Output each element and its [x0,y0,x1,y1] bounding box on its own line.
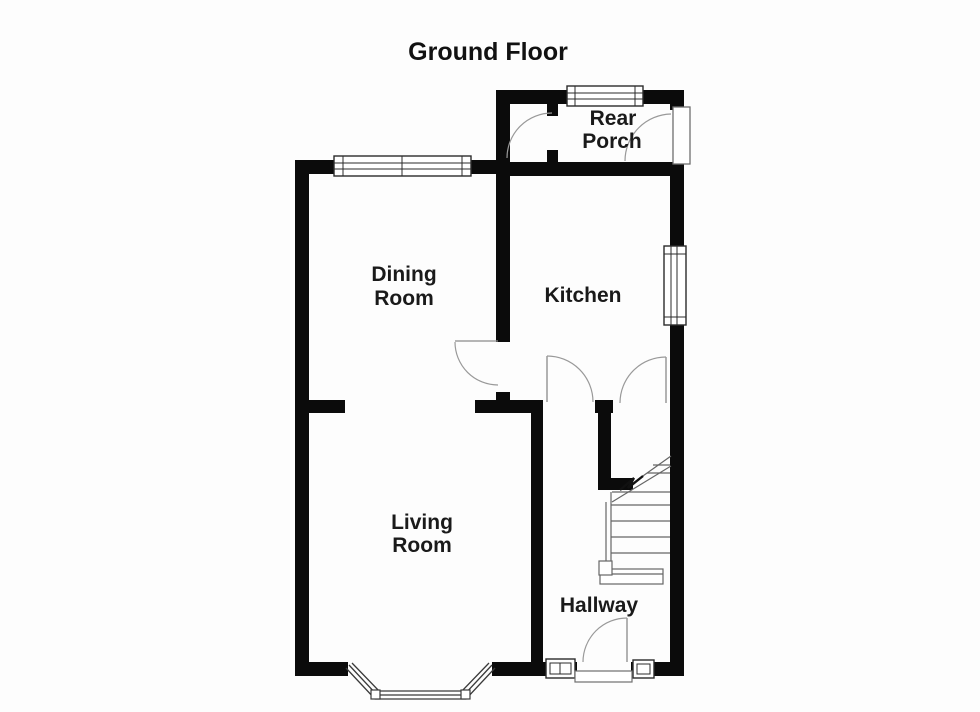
wall-porch-top-left [496,90,571,104]
wall-dining-kitchen-divider [496,176,510,342]
dining-room-label-line2: Room [374,287,434,310]
dining-room-window [334,156,471,176]
living-room-label-line2: Room [392,534,452,557]
porch-door-jamb-top [547,104,558,116]
room-label-hallway: Hallway [560,594,639,617]
bay-window [346,663,495,699]
front-sidelight-right-window [633,660,654,678]
stair-newel-post [599,561,612,575]
rear-porch-window [567,86,643,106]
outer-walls [295,90,684,676]
front-sidelight-left-window [546,659,575,678]
rear-porch-label-line1: Rear [590,107,637,130]
wall-top-dining-left [295,160,337,174]
living-room-label-line1: Living [391,511,453,534]
wall-bottom-left [295,662,348,676]
hallway-label: Hallway [560,594,639,617]
kitchen-hall-door-left [547,356,593,402]
wall-dining-living-left [309,400,345,413]
wall-right-lower [670,323,684,676]
porch-interior-door [507,113,552,158]
kitchen-window [664,246,686,325]
wall-hallway-left [531,400,543,662]
room-label-kitchen: Kitchen [544,284,621,307]
porch-door-jamb-bottom [547,150,558,162]
front-door [575,618,632,682]
wall-kitchen-top [510,162,684,176]
dining-room-label-line1: Dining [371,263,436,286]
room-label-rear-porch: Rear Porch [582,107,642,153]
floor-plan-page: Ground Floor Rear Porch Dining Room Kitc… [0,0,980,712]
wall-left-outer [295,160,309,676]
dining-kitchen-door [455,341,498,385]
room-label-dining-room: Dining Room [371,263,436,310]
room-label-living-room: Living Room [391,511,453,557]
kitchen-hall-door-right [620,357,666,403]
floor-plan-svg: Ground Floor Rear Porch Dining Room Kitc… [0,0,980,712]
page-title: Ground Floor [408,38,568,66]
rear-porch-label-line2: Porch [582,130,642,153]
wall-stairs-center [598,400,611,490]
kitchen-label: Kitchen [544,284,621,307]
interior-walls [309,104,633,662]
